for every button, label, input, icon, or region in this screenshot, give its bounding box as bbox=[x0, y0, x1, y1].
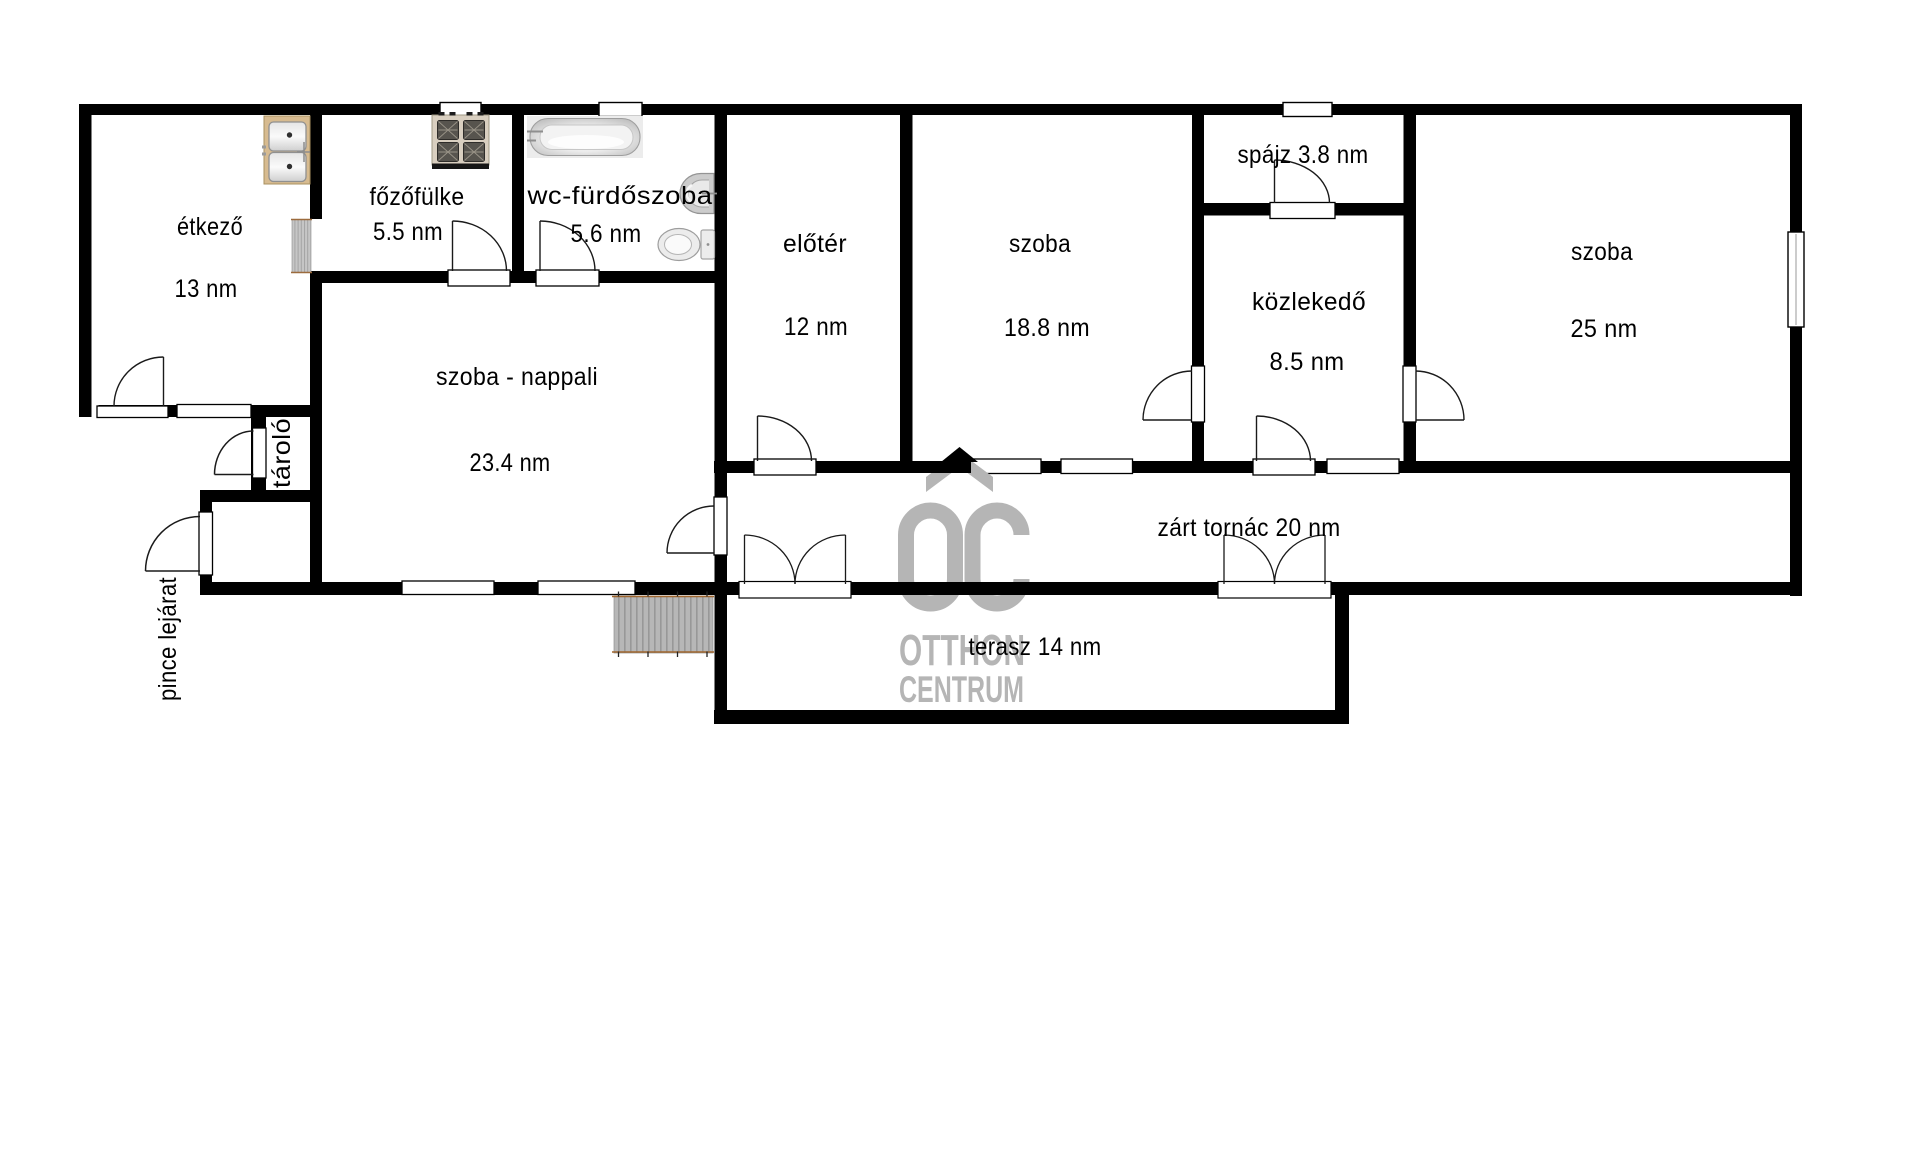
svg-text:zárt tornác 20 nm: zárt tornác 20 nm bbox=[1158, 514, 1341, 542]
svg-text:pince lejárat: pince lejárat bbox=[154, 577, 182, 701]
svg-text:25 nm: 25 nm bbox=[1571, 315, 1638, 343]
svg-text:wc-fürdőszoba: wc-fürdőszoba bbox=[526, 182, 712, 210]
svg-text:23.4 nm: 23.4 nm bbox=[470, 449, 551, 477]
svg-text:5.5 nm: 5.5 nm bbox=[373, 218, 443, 246]
svg-text:CENTRUM: CENTRUM bbox=[899, 669, 1024, 710]
svg-text:8.5 nm: 8.5 nm bbox=[1270, 348, 1345, 376]
svg-text:szoba: szoba bbox=[1571, 238, 1633, 266]
svg-text:szoba - nappali: szoba - nappali bbox=[436, 363, 598, 391]
svg-text:közlekedő: közlekedő bbox=[1252, 288, 1366, 316]
svg-text:szoba: szoba bbox=[1009, 230, 1071, 258]
svg-text:főzőfülke: főzőfülke bbox=[370, 183, 465, 211]
svg-text:étkező: étkező bbox=[177, 213, 243, 241]
svg-text:terasz 14 nm: terasz 14 nm bbox=[969, 633, 1102, 661]
svg-text:18.8 nm: 18.8 nm bbox=[1004, 314, 1090, 342]
svg-text:13 nm: 13 nm bbox=[175, 275, 238, 303]
svg-text:előtér: előtér bbox=[783, 230, 847, 258]
svg-text:spájz 3.8 nm: spájz 3.8 nm bbox=[1238, 141, 1369, 169]
svg-text:tároló: tároló bbox=[268, 418, 296, 488]
svg-text:12 nm: 12 nm bbox=[784, 313, 848, 341]
svg-text:5.6 nm: 5.6 nm bbox=[571, 220, 642, 248]
